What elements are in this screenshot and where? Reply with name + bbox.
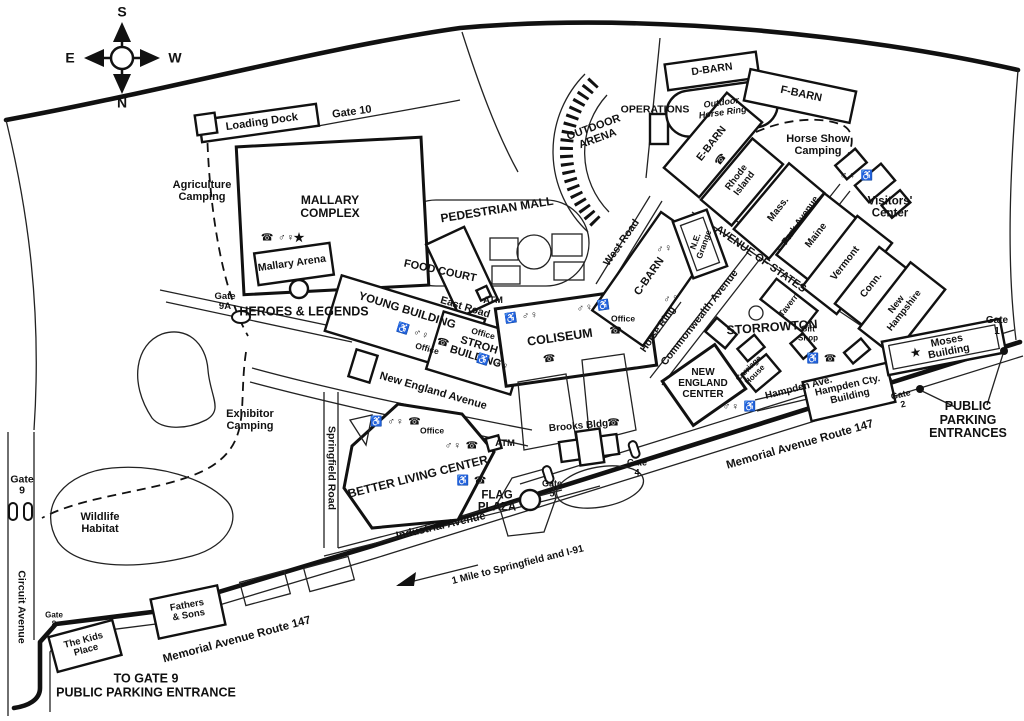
label-atm-food-court: ATM xyxy=(483,296,503,306)
memorial-avenue-edge xyxy=(50,356,1023,712)
map-drawing-layer xyxy=(0,0,1024,721)
parking-callout-line-2 xyxy=(987,354,1003,405)
small-building-1 xyxy=(348,349,377,382)
nec-amenity-icons: ♂♀ ♿ xyxy=(723,403,757,414)
north-boundary-road xyxy=(6,23,1018,120)
label-atm-blc: ATM xyxy=(495,439,515,449)
mall-block-3 xyxy=(552,234,582,256)
compass-east-label: E xyxy=(65,50,74,65)
fairgrounds-map: S N E W Loading Dock Gate 10 Agriculture… xyxy=(0,0,1024,721)
label-gate-8: Gate 8 xyxy=(45,611,63,628)
flag-plaza-circle xyxy=(520,490,540,510)
label-visitors-center: Visitors' Center xyxy=(868,196,913,221)
label-wildlife-habitat: Wildlife Habitat xyxy=(80,512,119,536)
storrowton-green xyxy=(749,306,763,320)
label-circuit-avenue: Circuit Avenue xyxy=(15,570,26,643)
label-heroes-legends: HEROES & LEGENDS xyxy=(239,305,368,319)
wildlife-habitat-outline xyxy=(51,467,233,565)
gate-9-pill-right xyxy=(24,503,32,520)
mall-block-1 xyxy=(490,238,518,260)
one-mile-arrowhead xyxy=(396,572,416,586)
label-springfield-road: Springfield Road xyxy=(325,426,336,510)
mallary-amenity-icons: ☎ ♂♀ xyxy=(261,234,295,245)
compass-rose xyxy=(84,22,160,94)
visitors-amenity-icons: ♂♀ ♿ xyxy=(840,172,874,183)
unlabeled-lot-1 xyxy=(518,374,576,450)
coliseum-phone-icon: ☎ xyxy=(543,354,558,367)
label-flag-plaza: FLAG PLAZA xyxy=(478,490,516,515)
storrowton-amenity-icons: ♿ ☎ xyxy=(807,355,838,366)
label-gate-9a: Gate 9A xyxy=(214,292,235,313)
compass-north-label: N xyxy=(117,95,127,110)
pond-outline xyxy=(138,332,215,427)
label-horse-show-camping: Horse Show Camping xyxy=(786,134,850,158)
west-boundary-line xyxy=(6,120,36,430)
gate-9-pill-left xyxy=(9,503,17,520)
mall-block-2 xyxy=(492,266,520,284)
operations-building xyxy=(650,114,668,144)
compass-south-label: S xyxy=(117,4,126,19)
cbarn-office-phone-icon: ☎ xyxy=(609,327,622,338)
label-public-parking-entrances: PUBLIC PARKING ENTRANCES xyxy=(929,400,1007,441)
label-gate-5: Gate 5 xyxy=(542,479,562,498)
label-to-gate-9: TO GATE 9 PUBLIC PARKING ENTRANCE xyxy=(56,673,236,700)
parking-lot-1 xyxy=(240,570,291,605)
parking-lot-2 xyxy=(304,556,355,591)
mall-fountain xyxy=(517,235,551,269)
loading-dock-annex xyxy=(195,113,218,136)
gate-10-lane xyxy=(462,32,518,172)
brooks-building-wing xyxy=(576,428,604,465)
brooks-phone-icon: ☎ xyxy=(607,419,620,430)
label-exhibitor-camping: Exhibitor Camping xyxy=(226,409,274,433)
outdoor-arena-inner-arc xyxy=(585,95,609,212)
gate-1-dot xyxy=(1000,347,1008,355)
storrowton-building-3 xyxy=(844,339,870,364)
label-office-cbarn: Office xyxy=(611,314,635,323)
label-new-england-center: NEW ENGLAND CENTER xyxy=(678,368,727,400)
label-agriculture-camping: Agriculture Camping xyxy=(173,180,232,204)
blc-amenity-icons-east: ♂♀ ☎ xyxy=(445,442,479,453)
label-operations: OPERATIONS xyxy=(621,104,690,115)
gate-4-pill xyxy=(628,440,641,459)
blc-amenity-icons-nw: ♿ ♂♀ ☎ xyxy=(370,418,421,429)
mallary-star-icon: ★ xyxy=(294,232,305,245)
east-boundary-line xyxy=(1010,70,1018,340)
mallary-plaza-circle xyxy=(290,280,308,298)
label-office-blc: Office xyxy=(420,426,444,435)
exhibitor-camping-boundary xyxy=(42,352,246,518)
label-mallary-complex: MALLARY COMPLEX xyxy=(300,194,359,220)
label-gate-9: Gate 9 xyxy=(10,475,33,498)
blc-amenity-icons-south: ♿ ☎ xyxy=(457,477,488,488)
compass-west-label: W xyxy=(168,50,181,65)
label-gate-1: Gate 1 xyxy=(986,316,1008,338)
label-gate-4: Gate 4 xyxy=(627,458,647,477)
